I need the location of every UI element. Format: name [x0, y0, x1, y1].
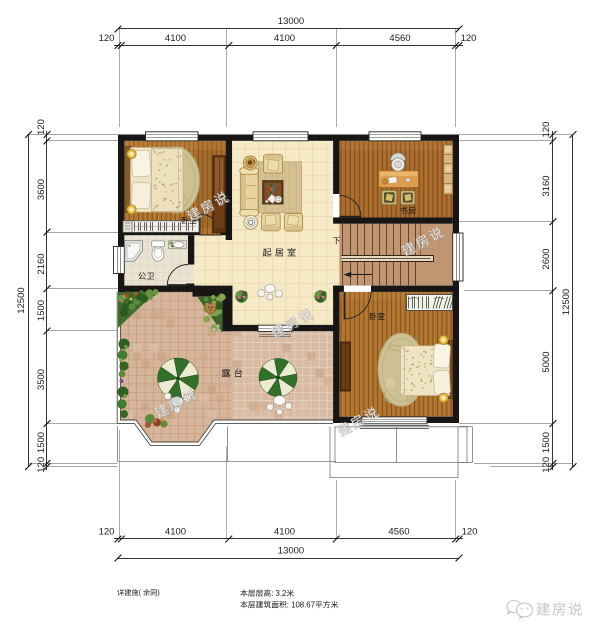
- svg-text:12500: 12500: [16, 287, 27, 313]
- svg-text:4100: 4100: [165, 33, 186, 44]
- svg-text:120: 120: [99, 33, 115, 44]
- svg-text:120: 120: [461, 33, 477, 44]
- svg-text:13000: 13000: [278, 16, 304, 27]
- svg-text:13000: 13000: [278, 545, 304, 556]
- svg-text:120: 120: [99, 526, 115, 537]
- svg-text:1500: 1500: [36, 300, 47, 321]
- svg-text:2600: 2600: [541, 248, 552, 269]
- svg-text:4100: 4100: [165, 526, 186, 537]
- svg-text:12500: 12500: [561, 289, 572, 315]
- svg-text:4100: 4100: [274, 33, 295, 44]
- svg-text:4560: 4560: [389, 33, 410, 44]
- svg-text:: 3.2: : 3.2: [271, 589, 286, 598]
- svg-text:120: 120: [462, 526, 478, 537]
- svg-text:120: 120: [541, 457, 552, 473]
- svg-text:120: 120: [36, 119, 47, 135]
- svg-text:4560: 4560: [388, 526, 409, 537]
- svg-text:4100: 4100: [274, 526, 295, 537]
- svg-text:: 108.67: : 108.67: [287, 600, 315, 609]
- svg-text:3160: 3160: [541, 175, 552, 196]
- svg-text:1500: 1500: [541, 432, 552, 453]
- svg-text:120: 120: [541, 122, 552, 138]
- svg-text:3600: 3600: [36, 179, 47, 200]
- svg-text:2160: 2160: [36, 253, 47, 274]
- svg-text:): ): [157, 588, 159, 597]
- svg-text:120: 120: [36, 457, 47, 473]
- svg-text:1500: 1500: [36, 432, 47, 453]
- svg-text:3500: 3500: [36, 369, 47, 390]
- svg-text:5000: 5000: [541, 351, 552, 372]
